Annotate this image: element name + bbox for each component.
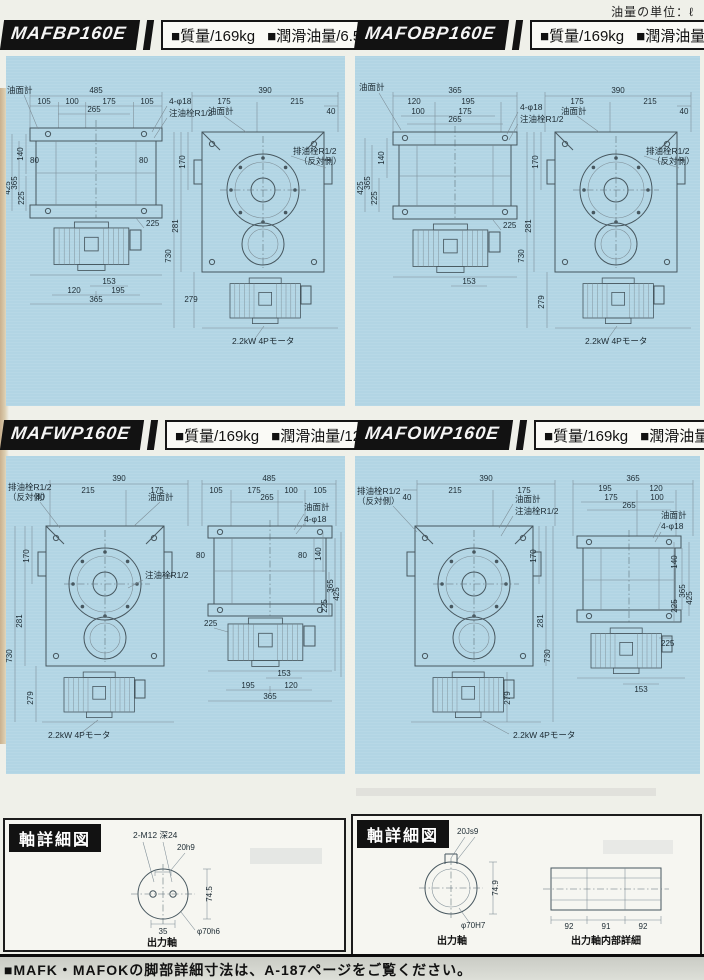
round-view-lines — [527, 92, 691, 328]
dim-label: 195 — [241, 681, 255, 690]
dim-label: 91 — [602, 922, 611, 931]
dim-label: 35 — [159, 927, 168, 936]
shaft-detail-panel: 軸詳細図 20Js9 74.9 φ70H7 出力軸 92 91 92 出力軸内部… — [351, 814, 702, 956]
dim-label: 140 — [670, 555, 679, 569]
dim-label: 92 — [639, 922, 648, 931]
dim-label: 40 — [327, 107, 336, 116]
shaft-drawing-labels: 2-M12 深24 20h9 74.5 35 φ70h6 出力軸 — [133, 830, 221, 949]
dim-label: 170 — [178, 155, 187, 169]
model-badge: MAFBP160E — [0, 20, 140, 50]
dim-label: 365 — [448, 86, 462, 95]
oil-unit-note: 油量の単位：ℓ — [611, 3, 694, 20]
divider-bar — [147, 420, 158, 450]
part-label: 排油栓R1/2 — [8, 482, 52, 492]
part-label: 注油栓R1/2 — [520, 114, 564, 124]
drawing-panel-mafbp160e: 油面計 485 105 100 175 105 265 4-φ18 注油栓R1/… — [6, 56, 345, 406]
dim-label: 279 — [503, 691, 512, 705]
dim-label: 281 — [524, 219, 533, 233]
dim-label: 390 — [479, 474, 493, 483]
dim-label: 485 — [262, 474, 276, 483]
dim-label: 365 — [10, 176, 19, 190]
spec-box: ■質量/169kg ■潤滑油量/6.5 — [161, 20, 371, 50]
model-badge: MAFOBP160E — [354, 20, 509, 50]
dim-label: 215 — [643, 97, 657, 106]
flat-view-motor — [577, 628, 685, 684]
dim-label: 215 — [448, 486, 462, 495]
part-label: 2.2kW 4Pモータ — [585, 336, 647, 346]
part-label: （反対側） — [299, 156, 342, 166]
dim-label: 40 — [36, 493, 45, 502]
part-label: 2.2kW 4Pモータ — [513, 730, 575, 740]
part-label: 油面計 — [7, 85, 33, 95]
dim-label: 225 — [320, 599, 329, 613]
dim-label: 120 — [649, 484, 663, 493]
dim-label: 225 — [503, 221, 517, 230]
dim-label: 175 — [217, 97, 231, 106]
part-label: （反対側） — [357, 496, 400, 506]
dim-label: 80 — [196, 551, 205, 560]
dim-label: 140 — [16, 147, 25, 161]
panel-header: MAFOWP160E ■質量/169kg ■潤滑油量/12.5 — [356, 420, 704, 450]
part-label: 2.2kW 4Pモータ — [48, 730, 110, 740]
dim-label: φ70h6 — [197, 927, 221, 936]
shaft-drawing-lines — [419, 837, 673, 924]
dim-label: 225 — [17, 191, 26, 205]
dim-label: 265 — [87, 105, 101, 114]
dim-label: 80 — [30, 156, 39, 165]
dim-label: 390 — [112, 474, 126, 483]
dim-label: 120 — [407, 97, 421, 106]
part-label: 油面計 — [148, 492, 174, 502]
part-label: 排油栓R1/2 — [293, 146, 337, 156]
dim-label: 153 — [277, 669, 291, 678]
dim-label: 195 — [461, 97, 475, 106]
dim-label: 425 — [685, 591, 694, 605]
dim-label: 225 — [661, 639, 675, 648]
part-label: 油面計 — [208, 106, 234, 116]
part-label: 注油栓R1/2 — [515, 506, 559, 516]
dim-label: 175 — [102, 97, 116, 106]
dim-label: 175 — [604, 493, 618, 502]
round-view-motor — [202, 278, 338, 340]
dim-label: 281 — [171, 219, 180, 233]
dim-label: 225 — [370, 191, 379, 205]
part-label: 排油栓R1/2 — [646, 146, 690, 156]
round-view-labels: 排油栓R1/2 （反対側） 390 215 175 40 油面計 注油栓R1/2… — [6, 474, 189, 740]
mafbp160e-drawing: 油面計 485 105 100 175 105 265 4-φ18 注油栓R1/… — [6, 56, 345, 406]
dim-label: φ70H7 — [461, 921, 486, 930]
mass-spec: ■質量/169kg — [540, 25, 624, 46]
part-label: 4-φ18 — [661, 521, 684, 531]
dim-label: 365 — [263, 692, 277, 701]
dim-label: 390 — [611, 86, 625, 95]
round-view-motor — [555, 278, 691, 340]
dim-label: 265 — [448, 115, 462, 124]
dim-label: 105 — [37, 97, 51, 106]
dim-label: 74.5 — [205, 886, 214, 902]
dim-label: 730 — [517, 249, 526, 263]
flat-view-labels: 485 105 175 100 105 265 油面計 4-φ18 80 80 … — [196, 474, 341, 701]
dim-label: 100 — [650, 493, 664, 502]
dim-label: 225 — [146, 219, 160, 228]
round-view-labels: 排油栓R1/2 （反対側） 390 215 175 40 油面計 注油栓R1/2… — [357, 474, 575, 740]
caption: 出力軸 — [437, 934, 467, 947]
round-view-lines — [174, 92, 338, 328]
dim-label: 80 — [139, 156, 148, 165]
divider-bar — [143, 20, 154, 50]
dim-label: 425 — [332, 587, 341, 601]
flat-view-labels: 365 195 120 175 100 265 油面計 4-φ18 140 22… — [598, 474, 694, 694]
divider-bar — [516, 420, 527, 450]
part-label: （反対側） — [652, 156, 695, 166]
round-view-motor — [42, 672, 174, 734]
dim-label: 153 — [634, 685, 648, 694]
drawing-panel-mafwp160e: 排油栓R1/2 （反対側） 390 215 175 40 油面計 注油栓R1/2… — [6, 456, 345, 774]
dim-label: 92 — [565, 922, 574, 931]
oil-spec: ■潤滑油量/6.5 — [636, 25, 704, 46]
mass-spec: ■質量/169kg — [171, 25, 255, 46]
model-badge: MAFOWP160E — [354, 420, 513, 450]
dim-label: 265 — [622, 501, 636, 510]
spec-box: ■質量/169kg ■潤滑油量/12.5 — [534, 420, 704, 450]
dim-label: 175 — [247, 486, 261, 495]
dim-label: 730 — [543, 649, 552, 663]
dim-label: 215 — [290, 97, 304, 106]
part-label: 2.2kW 4Pモータ — [232, 336, 294, 346]
part-label: 2-M12 深24 — [133, 830, 178, 840]
dim-label: 365 — [363, 176, 372, 190]
flat-view-labels: 油面計 365 120 195 100 175 265 4-φ18 注油栓R1/… — [356, 82, 564, 286]
dim-label: 105 — [209, 486, 223, 495]
part-label: 注油栓R1/2 — [145, 570, 189, 580]
dim-label: 730 — [164, 249, 173, 263]
flat-view-motor — [30, 222, 162, 304]
part-label: 油面計 — [661, 510, 687, 520]
dim-label: 365 — [89, 295, 103, 304]
dim-label: 170 — [529, 549, 538, 563]
panel-header: MAFWP160E ■質量/169kg ■潤滑油量/12.5 — [2, 420, 384, 450]
mafobp160e-drawing: 油面計 365 120 195 100 175 265 4-φ18 注油栓R1/… — [355, 56, 700, 406]
dim-label: 281 — [15, 614, 24, 628]
caption: 出力軸 — [147, 936, 177, 949]
flat-view-motor — [208, 618, 332, 701]
dim-label: 105 — [140, 97, 154, 106]
drawing-panel-mafowp160e: 排油栓R1/2 （反対側） 390 215 175 40 油面計 注油栓R1/2… — [355, 456, 700, 774]
flat-view-motor — [393, 224, 517, 286]
dim-label: 100 — [65, 97, 79, 106]
dim-label: 170 — [531, 155, 540, 169]
dim-label: 100 — [284, 486, 298, 495]
part-label: 4-φ18 — [169, 96, 192, 106]
mass-spec: ■質量/169kg — [175, 425, 259, 446]
dim-label: 195 — [598, 484, 612, 493]
mass-spec: ■質量/169kg — [544, 425, 628, 446]
round-view-lines — [15, 480, 188, 722]
dim-label: 730 — [6, 649, 14, 663]
panel-header: MAFOBP160E ■質量/169kg ■潤滑油量/6.5 — [356, 20, 704, 50]
dim-label: 153 — [102, 277, 116, 286]
mafowp160e-drawing: 排油栓R1/2 （反対側） 390 215 175 40 油面計 注油栓R1/2… — [355, 456, 700, 774]
dim-label: 20Js9 — [457, 827, 479, 836]
part-label: 排油栓R1/2 — [357, 486, 401, 496]
oil-spec: ■潤滑油量/6.5 — [267, 25, 361, 46]
model-badge: MAFWP160E — [0, 420, 144, 450]
dim-label: 100 — [411, 107, 425, 116]
dim-label: 485 — [89, 86, 103, 95]
spec-box: ■質量/169kg ■潤滑油量/6.5 — [530, 20, 704, 50]
shaft-detail-badge: 軸詳細図 — [357, 820, 449, 848]
dim-label: 279 — [537, 295, 546, 309]
show-through-artifact — [356, 788, 656, 796]
dim-label: 74.9 — [491, 880, 500, 896]
flat-view-lines — [365, 92, 518, 230]
dim-label: 225 — [670, 599, 679, 613]
round-view-motor — [411, 672, 541, 734]
part-label: 油面計 — [359, 82, 385, 92]
spec-box: ■質量/169kg ■潤滑油量/12.5 — [165, 420, 384, 450]
dim-label: 140 — [314, 547, 323, 561]
dim-label: 281 — [536, 614, 545, 628]
divider-bar — [512, 20, 523, 50]
dim-label: 153 — [462, 277, 476, 286]
dim-label: 80 — [298, 551, 307, 560]
round-view-lines — [393, 480, 555, 722]
dim-label: 195 — [111, 286, 125, 295]
mafwp160e-drawing: 排油栓R1/2 （反対側） 390 215 175 40 油面計 注油栓R1/2… — [6, 456, 345, 774]
shaft-detail-panel: 軸詳細図 2-M12 深24 20h9 74.5 35 φ70h6 出力軸 — [3, 818, 346, 952]
shaft-drawing-lines — [131, 842, 322, 930]
dim-label: 265 — [260, 493, 274, 502]
dim-label: 170 — [22, 549, 31, 563]
part-label: 注油栓R1/2 — [169, 108, 213, 118]
dim-label: 20h9 — [177, 843, 195, 852]
dim-label: 215 — [81, 486, 95, 495]
part-label: 4-φ18 — [520, 102, 543, 112]
dim-label: 105 — [313, 486, 327, 495]
dim-label: 279 — [26, 691, 35, 705]
flat-view-labels: 油面計 485 105 100 175 105 265 4-φ18 注油栓R1/… — [6, 85, 213, 304]
dim-label: 140 — [377, 151, 386, 165]
panel-header: MAFBP160E ■質量/169kg ■潤滑油量/6.5 — [2, 20, 371, 50]
dim-label: 120 — [67, 286, 81, 295]
dim-label: 40 — [403, 493, 412, 502]
dim-label: 390 — [258, 86, 272, 95]
dim-label: 120 — [284, 681, 298, 690]
footer-note: ■MAFK・MAFOKの脚部詳細寸法は、A-187ページをご覧ください。 — [0, 954, 704, 980]
oil-spec: ■潤滑油量/12.5 — [640, 425, 704, 446]
dim-label: 40 — [680, 107, 689, 116]
dim-label: 225 — [204, 619, 218, 628]
part-label: 油面計 — [304, 502, 330, 512]
dim-label: 175 — [570, 97, 584, 106]
part-label: 4-φ18 — [304, 514, 327, 524]
part-label: 油面計 — [561, 106, 587, 116]
shaft-detail-badge: 軸詳細図 — [9, 824, 101, 852]
dim-label: 365 — [626, 474, 640, 483]
drawing-panel-mafobp160e: 油面計 365 120 195 100 175 265 4-φ18 注油栓R1/… — [355, 56, 700, 406]
dim-label: 279 — [184, 295, 198, 304]
caption: 出力軸内部詳細 — [571, 934, 641, 947]
part-label: 油面計 — [515, 494, 541, 504]
